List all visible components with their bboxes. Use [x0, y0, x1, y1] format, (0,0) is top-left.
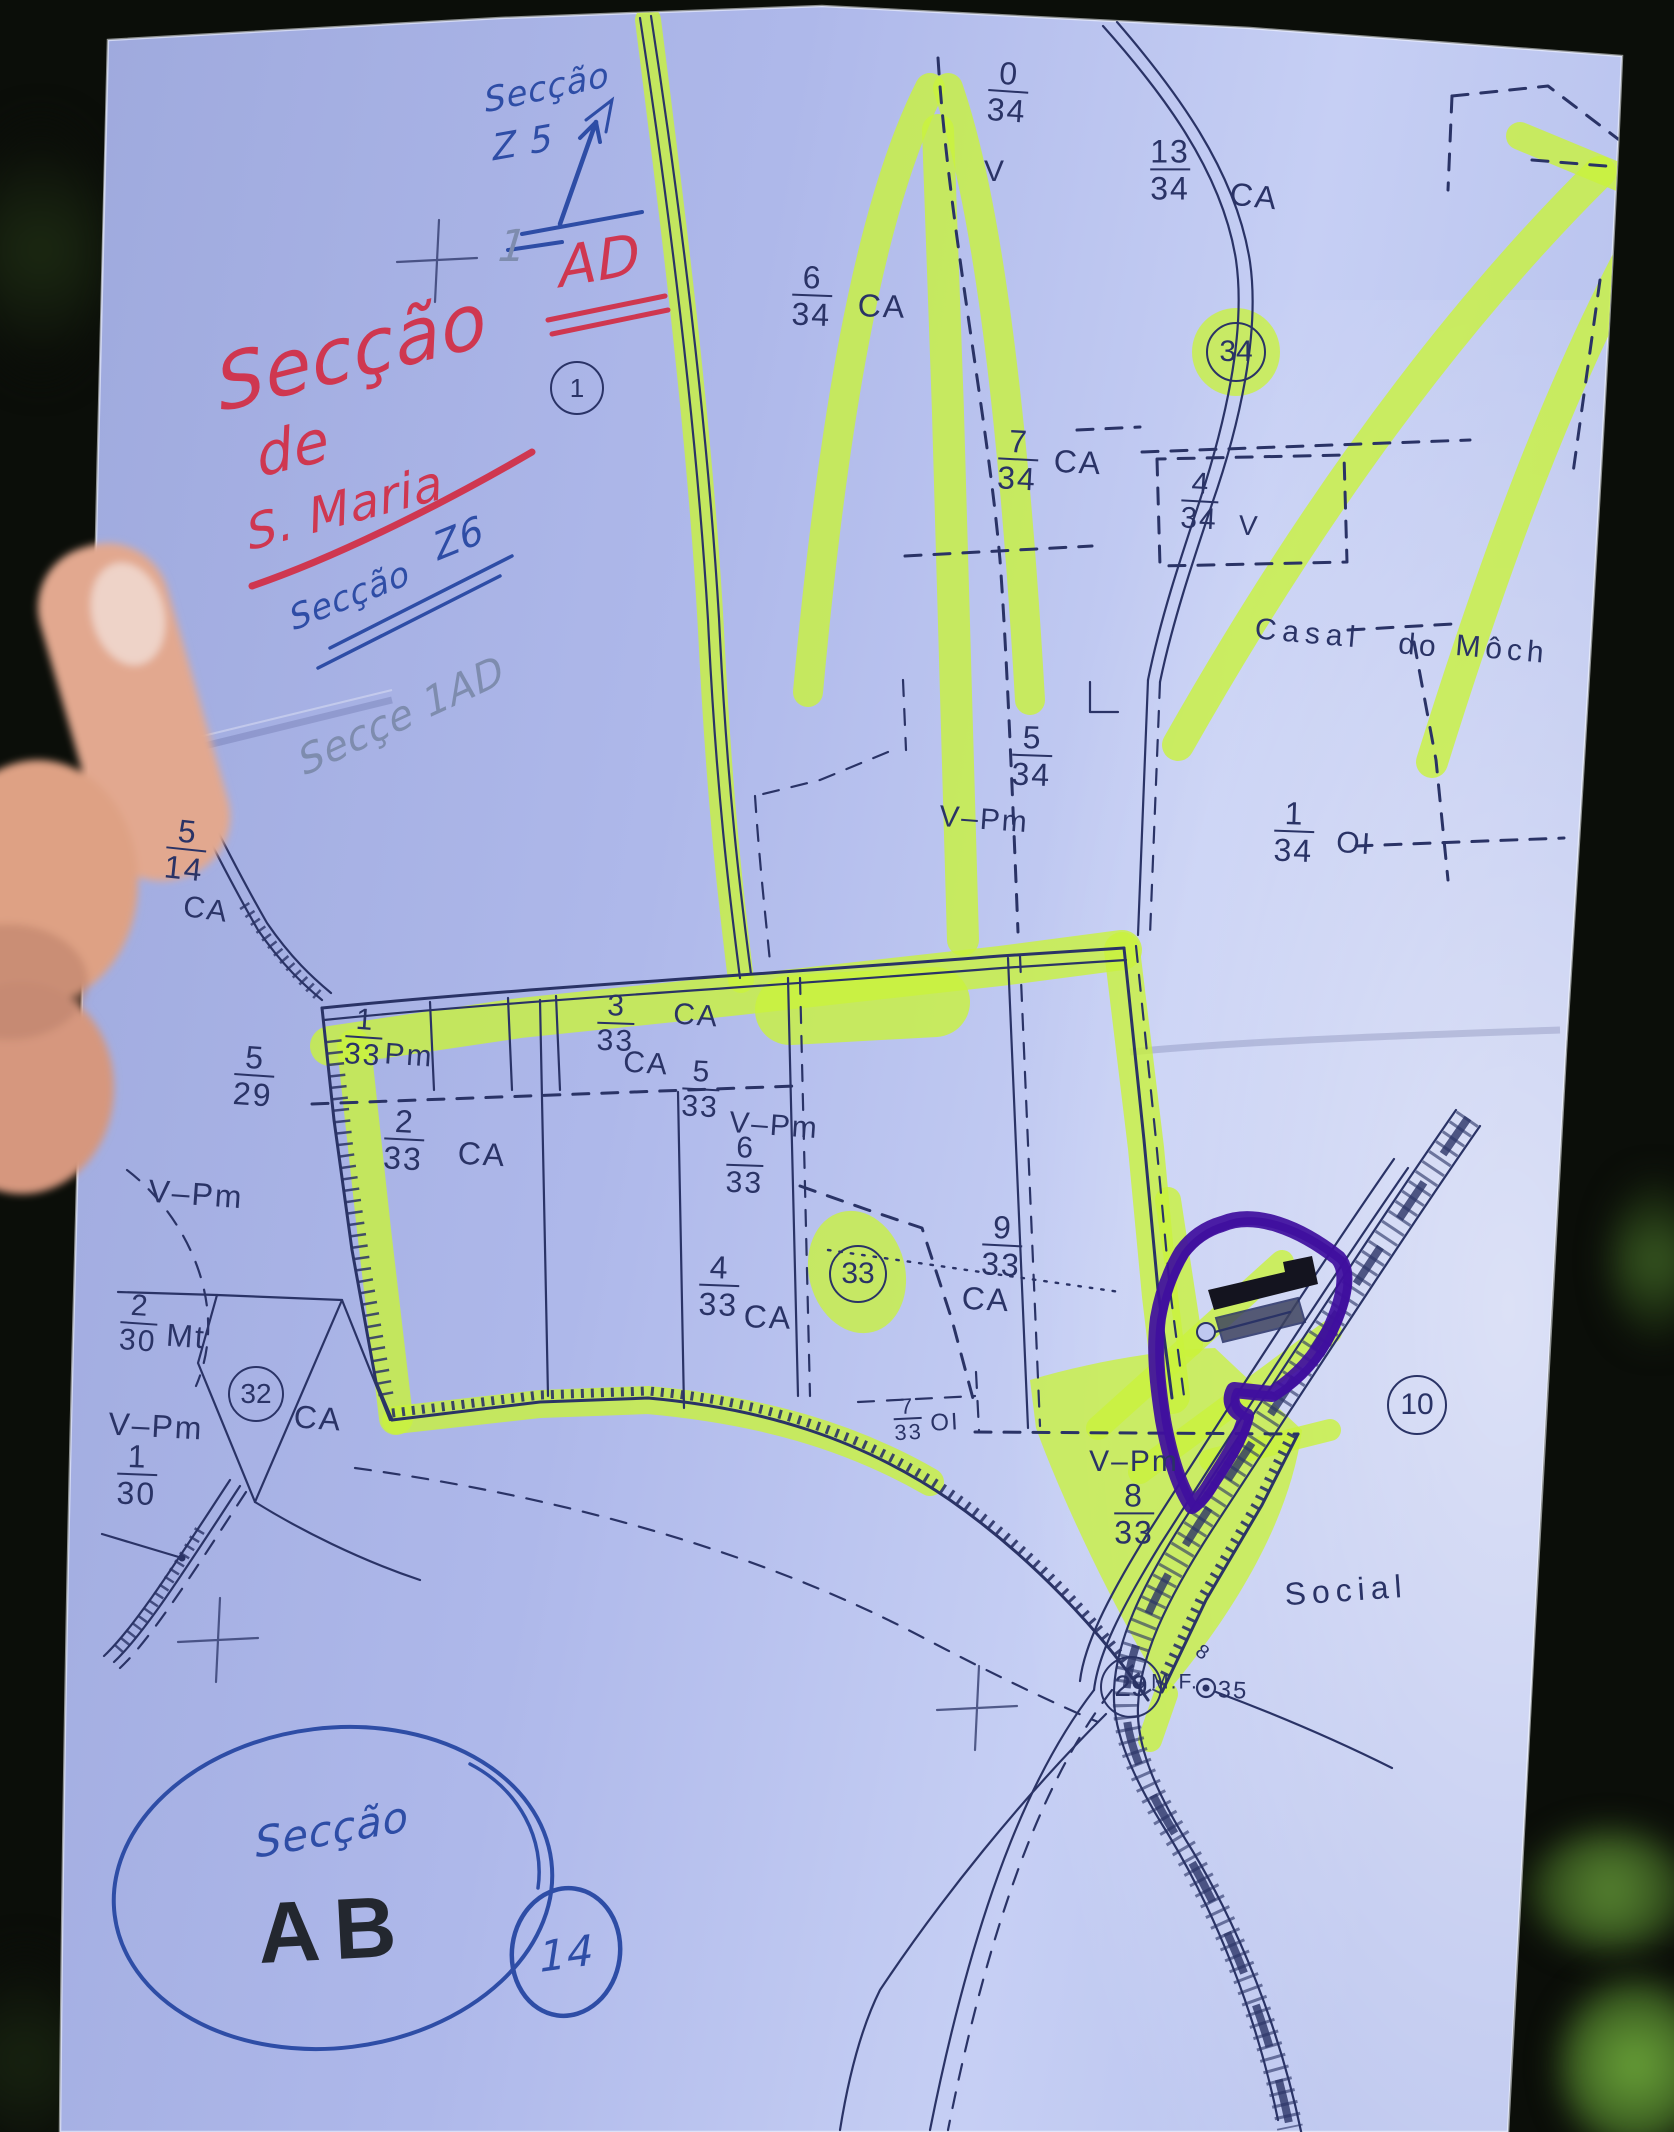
parcel-5-29: 529 [232, 1040, 276, 1112]
hw-seccao-z6: Secção [286, 556, 414, 637]
ca-33-b: CA [622, 1047, 670, 1080]
circled-10: 10 [1387, 1375, 1447, 1435]
oi-7-33: OI [930, 1410, 961, 1436]
social: Social [1283, 1570, 1408, 1611]
hw-z5: Z 5 [491, 121, 555, 168]
mf: M.F. [1151, 1672, 1199, 1693]
benchmark-35: 35 [1217, 1678, 1249, 1704]
parcel-2-33: 233 [382, 1104, 425, 1175]
v-4-34: V [1238, 511, 1260, 540]
v-0-34: V [984, 157, 1006, 187]
parcel-5-33: 533 [681, 1056, 722, 1123]
circled-34: 34 [1206, 322, 1266, 382]
ca-5-14: CA [181, 892, 230, 928]
circled-33: 33 [829, 1245, 887, 1303]
parcel-0-34: 034 [986, 56, 1030, 128]
parcel-9-33: 933 [980, 1210, 1023, 1281]
parcel-6-34: 634 [791, 261, 833, 332]
vpm-5-34: V–Pm [938, 802, 1030, 838]
hw-ad: AD [557, 227, 643, 298]
parcel-1-34: 134 [1273, 797, 1315, 868]
circled-1: 1 [550, 361, 604, 415]
hw-1-pencil: 1 [496, 225, 530, 269]
labels-layer: 034V1334CA634CA734CA34434VCasaldoMôch534… [0, 0, 1674, 2132]
pm-1-33: Pm [384, 1039, 435, 1072]
hw-14: 14 [539, 1929, 595, 1979]
vpm-nw: V–Pm [147, 1175, 244, 1214]
parcel-4-34: 434 [1180, 468, 1221, 535]
parcel-4-33: 433 [698, 1251, 740, 1322]
ca-32: CA [293, 1400, 344, 1435]
ca-9-33: CA [961, 1282, 1011, 1316]
ca-33-a: CA [672, 999, 720, 1032]
hw-seccao-z5: Secção [483, 58, 611, 119]
oi-1-34: OI [1335, 828, 1373, 860]
photo-of-cadastral-map: 034V1334CA634CA734CA34434VCasaldoMôch534… [0, 0, 1674, 2132]
parcel-2-30: 230 [118, 1290, 160, 1358]
ca-13-34: CA [1228, 178, 1280, 215]
parcel-5-14: 514 [163, 813, 210, 886]
hw-seccao-red: Secção [212, 281, 492, 424]
parcel-13-34: 1334 [1150, 135, 1190, 204]
print-ab: AB [256, 1883, 413, 1977]
ca-4-33: CA [743, 1300, 793, 1334]
rail-8: 8 [1192, 1641, 1214, 1665]
parcel-6-33: 633 [725, 1133, 765, 1199]
hw-secce-1ad: Secçe 1AD [294, 650, 510, 783]
parcel-1-33: 133 [343, 1004, 385, 1072]
vpm-8-33: V–Pm [1089, 1447, 1179, 1477]
hw-z6: Z6 [430, 510, 489, 566]
casal: Casal [1254, 614, 1363, 653]
do: do [1397, 629, 1441, 662]
hw-seccao-ab: Secção [254, 1795, 411, 1864]
parcel-7-34: 734 [996, 424, 1039, 495]
ca-6-34: CA [857, 289, 907, 323]
mt-2-30: Mt [165, 1319, 207, 1354]
parcel-5-34: 534 [1011, 721, 1053, 792]
parcel-7-33: 733 [892, 1395, 923, 1445]
parcel-8-33: 833 [1114, 1479, 1154, 1548]
ca-7-34: CA [1053, 445, 1103, 479]
parcel-1-30: 130 [116, 1440, 158, 1511]
circled-32: 32 [228, 1366, 284, 1422]
hw-de: de [253, 410, 333, 486]
ca-2-33: CA [457, 1137, 507, 1171]
mocho: Môch [1454, 631, 1550, 669]
